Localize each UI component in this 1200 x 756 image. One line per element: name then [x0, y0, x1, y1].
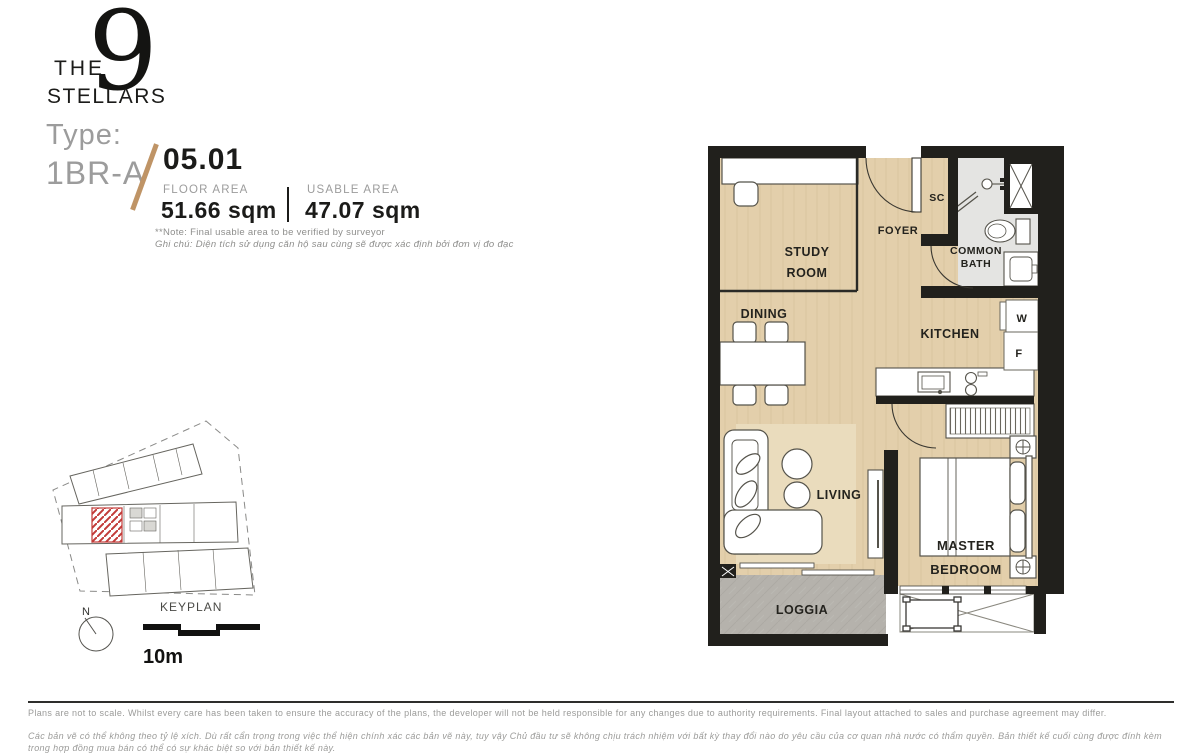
unit-number: 05.01 [163, 143, 243, 177]
disclaimer-vi: Các bản vẽ có thể không theo tỷ lệ xích.… [28, 731, 1176, 754]
unit-type-label: Type: [46, 119, 122, 152]
scale-label: 10m [143, 646, 183, 668]
scale-bar [143, 624, 260, 636]
dining-table [720, 342, 805, 385]
entrance-door-leaf [912, 158, 921, 212]
tv-console [868, 470, 883, 558]
brand-stellars: STELLARS [47, 85, 166, 109]
label-foyer: FOYER [878, 225, 918, 237]
label-kitchen: KITCHEN [920, 327, 979, 341]
label-washer: W [1017, 313, 1028, 325]
label-loggia: LOGGIA [776, 603, 828, 617]
disclaimer-rule [28, 701, 1174, 703]
headboard [1026, 456, 1032, 558]
floorplan: STUDY ROOM FOYER SC COMMON BATH DINING K… [708, 146, 1064, 652]
area-divider [287, 187, 289, 222]
keyplan: N KEYPLAN 10m [48, 418, 268, 678]
kitchen-counter [876, 368, 1034, 396]
label-common-bath: COMMON [950, 245, 1002, 257]
vanity-sink [1004, 252, 1038, 286]
keyplan-title: KEYPLAN [160, 600, 222, 614]
label-study-room: STUDY [785, 245, 830, 259]
bedroom-window [900, 586, 1026, 594]
bedroom-divider-wall [884, 450, 898, 594]
disclaimer-en: Plans are not to scale. Whilst every car… [28, 708, 1176, 720]
svg-text:BATH: BATH [961, 258, 991, 270]
label-dining: DINING [741, 307, 788, 321]
note-en: **Note: Final usable area to be verified… [155, 227, 385, 238]
wardrobe [946, 404, 1034, 438]
stove-burner [966, 385, 977, 396]
stove-burner [966, 373, 977, 384]
toilet [985, 219, 1030, 244]
svg-text:BEDROOM: BEDROOM [930, 562, 1001, 577]
label-fridge: F [1015, 348, 1022, 360]
pillow [1010, 510, 1025, 552]
study-chair [734, 182, 758, 206]
pillow [1010, 462, 1025, 504]
floor-area-value: 51.66 sqm [161, 197, 277, 224]
north-label: N [82, 606, 90, 618]
north-arrow: N [79, 606, 113, 651]
floor-area-label: FLOOR AREA [163, 184, 249, 196]
ac-unit [903, 597, 961, 631]
shower-shaft [1010, 164, 1032, 208]
brochure-page: THE 9 STELLARS Type: 1BR-A 05.01 FLOOR A… [0, 0, 1200, 756]
label-living: LIVING [817, 488, 862, 502]
unit-type-value: 1BR-A [46, 155, 145, 192]
usable-area-label: USABLE AREA [307, 184, 399, 196]
highlighted-unit [92, 508, 122, 542]
note-vi: Ghi chú: Diện tích sử dụng căn hộ sau cù… [155, 239, 514, 250]
label-shoe-cabinet: SC [929, 192, 945, 204]
label-master-bedroom: MASTER [937, 538, 995, 553]
svg-text:ROOM: ROOM [787, 266, 828, 280]
usable-area-value: 47.07 sqm [305, 197, 421, 224]
keyplan-building [62, 444, 253, 596]
